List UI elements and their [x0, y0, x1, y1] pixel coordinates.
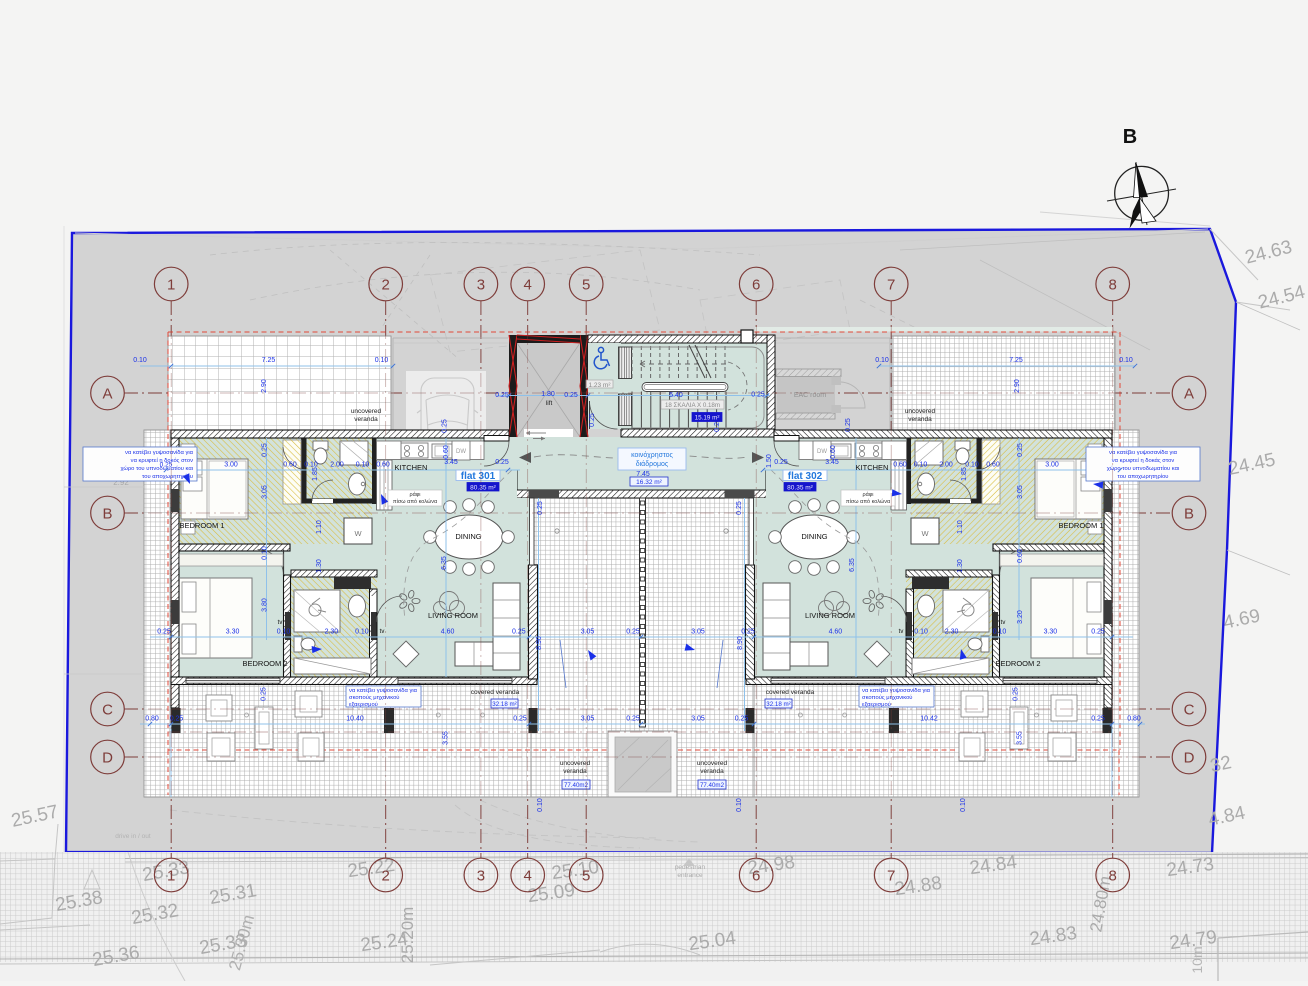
svg-text:0.25: 0.25: [1013, 687, 1020, 701]
svg-text:8: 8: [1109, 277, 1117, 294]
svg-text:32: 32: [1208, 752, 1233, 777]
svg-text:2.00: 2.00: [939, 462, 953, 469]
svg-text:drive in / out: drive in / out: [115, 833, 151, 840]
svg-text:covered veranda: covered veranda: [766, 689, 815, 696]
svg-text:0.25: 0.25: [626, 629, 640, 636]
svg-text:3.55: 3.55: [1017, 731, 1024, 745]
svg-text:veranda: veranda: [563, 768, 587, 775]
svg-text:0.25: 0.25: [157, 629, 171, 636]
svg-text:6.35: 6.35: [441, 556, 448, 570]
svg-text:να κατέβει γυψοσανίδα για: να κατέβει γυψοσανίδα για: [349, 687, 418, 694]
svg-text:2.00: 2.00: [330, 462, 344, 469]
svg-text:3: 3: [477, 277, 485, 294]
svg-text:να κατέβει γυψοσανίδα για: να κατέβει γυψοσανίδα για: [125, 449, 194, 456]
svg-text:DINING: DINING: [801, 532, 827, 541]
svg-text:B: B: [1123, 126, 1137, 148]
svg-text:KITCHEN: KITCHEN: [856, 463, 889, 472]
svg-text:77.40m2: 77.40m2: [564, 782, 589, 789]
svg-text:0.25: 0.25: [262, 443, 269, 457]
svg-text:0.60: 0.60: [830, 445, 837, 459]
svg-text:2: 2: [382, 868, 390, 885]
svg-text:ράφι: ράφι: [862, 491, 874, 498]
svg-text:flat 302: flat 302: [788, 471, 823, 482]
svg-text:3.80: 3.80: [262, 598, 269, 612]
svg-text:B: B: [102, 506, 112, 523]
svg-text:1.10: 1.10: [957, 520, 964, 534]
svg-text:0.60: 0.60: [376, 462, 390, 469]
svg-text:7: 7: [887, 868, 895, 885]
svg-text:A: A: [102, 386, 112, 403]
svg-text:0.25: 0.25: [512, 629, 526, 636]
svg-text:2.30: 2.30: [325, 629, 339, 636]
svg-text:του αποχωρητηρίου: του αποχωρητηρίου: [1118, 474, 1169, 480]
svg-text:0.10: 0.10: [914, 629, 928, 636]
svg-text:3.05: 3.05: [1017, 485, 1024, 499]
svg-text:uncovered: uncovered: [905, 408, 936, 415]
svg-text:3.45: 3.45: [444, 459, 458, 466]
svg-text:A: A: [1184, 386, 1194, 403]
svg-text:0.25: 0.25: [741, 629, 755, 636]
svg-text:0.10: 0.10: [356, 462, 370, 469]
svg-text:0.10: 0.10: [914, 462, 928, 469]
svg-text:3.05: 3.05: [691, 629, 705, 636]
svg-text:2.90: 2.90: [261, 379, 268, 393]
svg-text:8: 8: [1109, 868, 1117, 885]
svg-text:0.25: 0.25: [495, 459, 509, 466]
svg-text:0.25: 0.25: [774, 459, 788, 466]
svg-text:0.10: 0.10: [960, 798, 967, 812]
svg-text:πίσω από κολώνα: πίσω από κολώνα: [846, 498, 891, 505]
svg-text:εξαερισμού: εξαερισμού: [862, 702, 891, 708]
svg-text:0.25: 0.25: [170, 716, 184, 723]
svg-text:0.25: 0.25: [160, 462, 173, 469]
svg-text:διάδρομος: διάδρομος: [636, 460, 669, 468]
svg-text:4.60: 4.60: [441, 629, 455, 636]
svg-text:0.60: 0.60: [443, 445, 450, 459]
svg-text:4: 4: [524, 277, 532, 294]
svg-text:6: 6: [752, 277, 760, 294]
svg-text:tv: tv: [1001, 620, 1006, 626]
svg-text:B: B: [1184, 506, 1194, 523]
svg-text:veranda: veranda: [908, 416, 932, 423]
svg-text:10m: 10m: [1189, 946, 1205, 973]
svg-text:1: 1: [167, 277, 175, 294]
svg-text:0.10: 0.10: [277, 629, 291, 636]
svg-text:tv: tv: [380, 629, 385, 635]
svg-text:0.25: 0.25: [1091, 629, 1105, 636]
svg-text:W: W: [921, 529, 929, 538]
svg-text:0.10: 0.10: [262, 546, 269, 560]
svg-text:DW: DW: [456, 449, 466, 455]
svg-text:4.60: 4.60: [829, 629, 843, 636]
svg-text:6: 6: [752, 868, 760, 885]
svg-text:32.18 m²: 32.18 m²: [766, 701, 790, 708]
svg-text:3.05: 3.05: [581, 629, 595, 636]
svg-text:2.90: 2.90: [1014, 379, 1021, 393]
svg-text:uncovered: uncovered: [697, 760, 728, 767]
svg-text:C: C: [1184, 702, 1195, 719]
svg-text:veranda: veranda: [700, 768, 724, 775]
svg-text:0.25: 0.25: [1091, 716, 1105, 723]
svg-text:ράφι: ράφι: [409, 491, 421, 498]
svg-text:80.35 m²: 80.35 m²: [470, 485, 496, 492]
svg-text:1.10: 1.10: [316, 520, 323, 534]
svg-text:0.10: 0.10: [736, 798, 743, 812]
svg-text:0.10: 0.10: [355, 629, 369, 636]
svg-text:0.25: 0.25: [751, 392, 765, 399]
svg-text:LIVING ROOM: LIVING ROOM: [428, 611, 478, 620]
svg-text:entrance: entrance: [677, 872, 703, 879]
svg-text:DW: DW: [817, 449, 827, 455]
svg-text:tv: tv: [278, 620, 283, 626]
svg-text:3: 3: [477, 868, 485, 885]
svg-text:15.19 m²: 15.19 m²: [695, 415, 720, 422]
svg-text:σκοπούς μηχανικού: σκοπούς μηχανικού: [862, 695, 912, 701]
svg-text:3.05: 3.05: [691, 716, 705, 723]
svg-text:0.10: 0.10: [133, 357, 147, 364]
svg-text:2: 2: [382, 277, 390, 294]
svg-text:32.18 m²: 32.18 m²: [492, 701, 516, 708]
svg-text:3.20: 3.20: [1017, 610, 1024, 624]
svg-text:3.30: 3.30: [226, 629, 240, 636]
svg-text:1.80: 1.80: [541, 391, 555, 398]
svg-text:D: D: [1184, 750, 1195, 767]
svg-text:0.10: 0.10: [993, 629, 1007, 636]
svg-text:BEDROOM 1: BEDROOM 1: [1058, 521, 1103, 530]
svg-text:χώρο του υπνοδωματίου και: χώρο του υπνοδωματίου και: [1107, 466, 1180, 472]
svg-text:18 ΣΚΑΛΙΑ Χ 0.18m: 18 ΣΚΑΛΙΑ Χ 0.18m: [665, 402, 720, 409]
svg-text:6.35: 6.35: [849, 558, 856, 572]
svg-text:εξαερισμού: εξαερισμού: [349, 702, 378, 708]
svg-text:10.42: 10.42: [920, 716, 938, 723]
svg-text:10.40: 10.40: [346, 716, 364, 723]
svg-text:1.30: 1.30: [316, 559, 323, 573]
svg-text:tv: tv: [899, 629, 904, 635]
svg-text:3.05: 3.05: [262, 485, 269, 499]
svg-text:D: D: [102, 750, 113, 767]
svg-text:1: 1: [167, 868, 175, 885]
svg-text:lift: lift: [546, 400, 553, 407]
svg-text:77.40m2: 77.40m2: [700, 782, 725, 789]
svg-text:veranda: veranda: [354, 416, 378, 423]
svg-text:1.50: 1.50: [766, 454, 773, 468]
svg-text:1.85: 1.85: [312, 467, 319, 481]
svg-text:5: 5: [582, 277, 590, 294]
svg-text:uncovered: uncovered: [351, 408, 382, 415]
svg-text:πίσω από κολώνα: πίσω από κολώνα: [393, 498, 438, 505]
svg-text:0.10: 0.10: [537, 798, 544, 812]
svg-text:5: 5: [582, 868, 590, 885]
svg-text:1.23 m²: 1.23 m²: [588, 382, 611, 389]
svg-text:BEDROOM 1: BEDROOM 1: [179, 521, 224, 530]
svg-text:να κρυφτεί η δοκάς στον: να κρυφτεί η δοκάς στον: [1112, 457, 1175, 464]
svg-text:0.25: 0.25: [845, 418, 852, 432]
svg-text:0.25: 0.25: [513, 716, 527, 723]
svg-text:3.30: 3.30: [1044, 629, 1058, 636]
svg-text:W: W: [354, 529, 362, 538]
svg-text:C: C: [102, 702, 113, 719]
svg-text:1.30: 1.30: [957, 559, 964, 573]
svg-text:BEDROOM 2: BEDROOM 2: [242, 659, 287, 668]
svg-text:0.60: 0.60: [1017, 549, 1024, 563]
svg-text:χώρο του υπνοδωματίου και: χώρο του υπνοδωματίου και: [120, 466, 193, 472]
svg-text:0.10: 0.10: [1119, 357, 1133, 364]
svg-text:7: 7: [887, 277, 895, 294]
svg-text:0.25: 0.25: [442, 419, 449, 433]
svg-text:0.60: 0.60: [893, 462, 907, 469]
svg-text:covered veranda: covered veranda: [471, 689, 520, 696]
svg-text:3.00: 3.00: [224, 462, 238, 469]
svg-text:σκοπούς μηχανικού: σκοπούς μηχανικού: [349, 695, 399, 701]
svg-text:να κατέβει γυψοσανίδα για: να κατέβει γυψοσανίδα για: [862, 687, 931, 694]
svg-text:25.20m: 25.20m: [398, 907, 417, 964]
svg-text:0.10: 0.10: [375, 357, 389, 364]
svg-text:2.30: 2.30: [945, 629, 959, 636]
svg-text:0.80: 0.80: [145, 716, 159, 723]
svg-text:3.45: 3.45: [825, 459, 839, 466]
svg-text:DINING: DINING: [455, 532, 481, 541]
svg-text:0.25: 0.25: [589, 413, 596, 427]
svg-text:flat 301: flat 301: [461, 471, 496, 482]
svg-text:0.80: 0.80: [1127, 716, 1141, 723]
svg-text:8.90: 8.90: [737, 636, 744, 650]
svg-text:0.25: 0.25: [1017, 443, 1024, 457]
svg-text:0.60: 0.60: [283, 462, 297, 469]
svg-text:1.85: 1.85: [961, 467, 968, 481]
svg-text:0.25: 0.25: [626, 716, 640, 723]
svg-text:κοινόχρηστος: κοινόχρηστος: [631, 451, 673, 459]
svg-text:7.25: 7.25: [1009, 357, 1023, 364]
svg-text:3.00: 3.00: [1045, 462, 1059, 469]
svg-text:0.60: 0.60: [986, 462, 1000, 469]
svg-text:8.90: 8.90: [536, 636, 543, 650]
svg-text:LIVING ROOM: LIVING ROOM: [805, 611, 855, 620]
svg-text:3.05: 3.05: [581, 716, 595, 723]
svg-text:3.55: 3.55: [443, 731, 450, 745]
svg-text:BEDROOM 2: BEDROOM 2: [995, 659, 1040, 668]
svg-text:0.25: 0.25: [735, 716, 749, 723]
svg-text:0.25: 0.25: [261, 687, 268, 701]
svg-text:4: 4: [524, 868, 532, 885]
svg-text:KITCHEN: KITCHEN: [395, 463, 428, 472]
svg-text:7.25: 7.25: [262, 357, 276, 364]
svg-text:0.10: 0.10: [875, 357, 889, 364]
svg-text:να κατέβει γυψοσανίδα για: να κατέβει γυψοσανίδα για: [1109, 449, 1178, 456]
svg-text:16.32 m²: 16.32 m²: [636, 479, 662, 486]
svg-text:80.35 m²: 80.35 m²: [787, 485, 813, 492]
